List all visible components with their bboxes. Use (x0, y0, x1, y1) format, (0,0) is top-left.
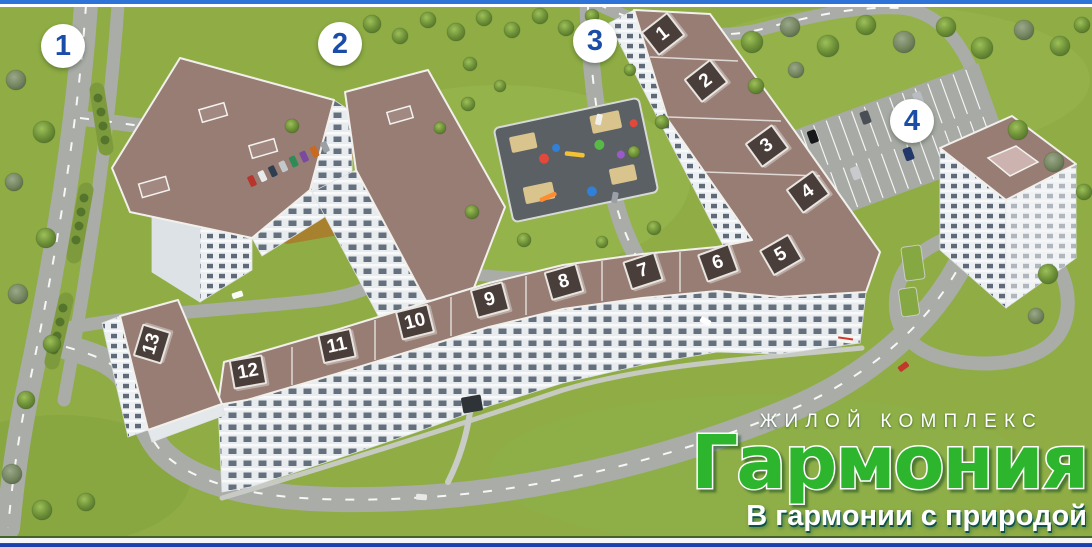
section-plate-label: 7 (635, 259, 652, 283)
section-plate-label: 1 (652, 22, 674, 46)
building-section-plate-12: 12 (229, 354, 268, 389)
section-plate-label: 4 (797, 180, 818, 204)
section-plate-label: 11 (325, 333, 349, 359)
section-plate-label: 9 (482, 288, 498, 312)
bottom-border-blue (0, 543, 1092, 547)
area-marker-2[interactable]: 2 (318, 22, 362, 66)
area-marker-label: 2 (332, 28, 348, 61)
logo-tagline: В гармонии с природой (691, 502, 1087, 531)
section-plate-label: 2 (695, 69, 717, 93)
section-plate-label: 8 (556, 270, 572, 294)
residential-complex-site-plan: 1 2 3 4 1 2 3 4 5 6 7 8 9 10 11 12 13 ЖИ… (0, 0, 1092, 547)
area-marker-label: 3 (587, 25, 603, 58)
area-marker-4[interactable]: 4 (890, 99, 934, 143)
section-plate-label: 5 (771, 243, 791, 267)
section-plate-label: 6 (709, 251, 726, 275)
logo: ЖИЛОЙ КОМПЛЕКС Гармония В гармонии с при… (691, 412, 1087, 531)
section-plate-label: 13 (138, 331, 165, 358)
area-marker-1[interactable]: 1 (41, 24, 85, 68)
section-plate-label: 12 (236, 359, 261, 384)
logo-name: Гармония (691, 429, 1087, 497)
area-marker-3[interactable]: 3 (573, 19, 617, 63)
section-plate-label: 10 (402, 309, 428, 335)
top-border-white (0, 4, 1092, 7)
area-marker-label: 1 (55, 30, 71, 63)
area-marker-label: 4 (904, 105, 920, 138)
section-plate-label: 3 (756, 134, 777, 158)
